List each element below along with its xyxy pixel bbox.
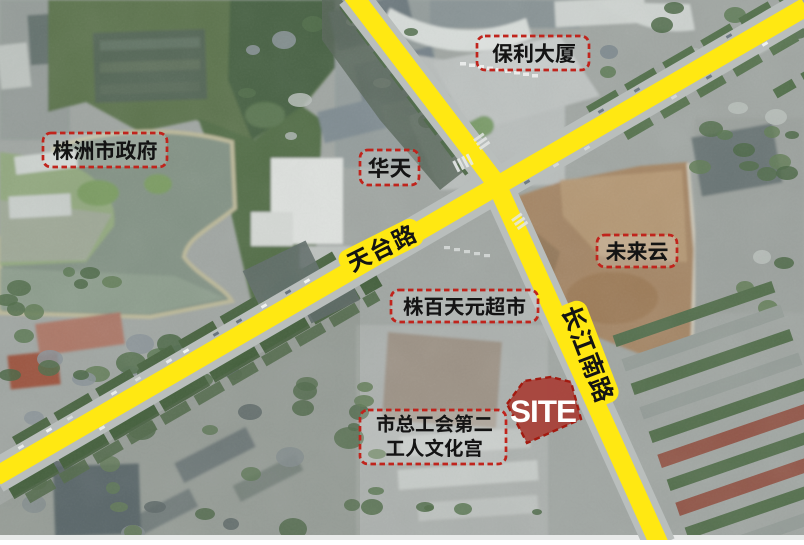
svg-text:SITE: SITE [510,393,576,429]
